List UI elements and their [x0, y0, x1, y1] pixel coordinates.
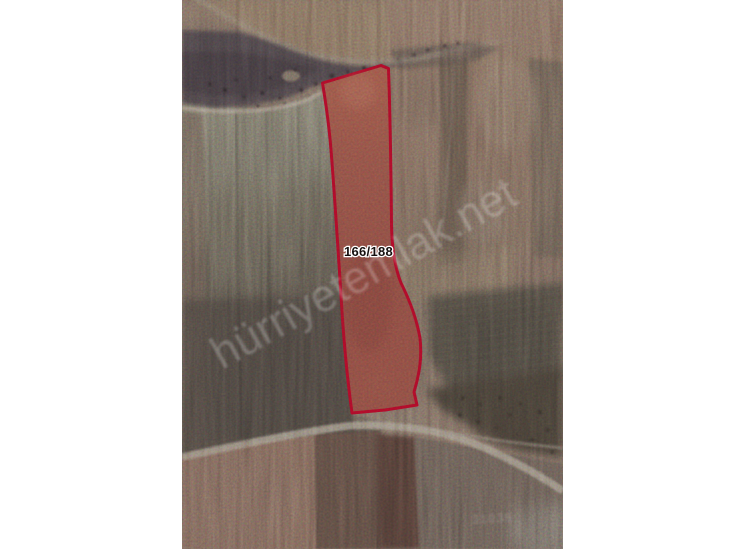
svg-text:166/188: 166/188 — [344, 244, 393, 259]
svg-text:31035: 31035 — [471, 510, 513, 527]
